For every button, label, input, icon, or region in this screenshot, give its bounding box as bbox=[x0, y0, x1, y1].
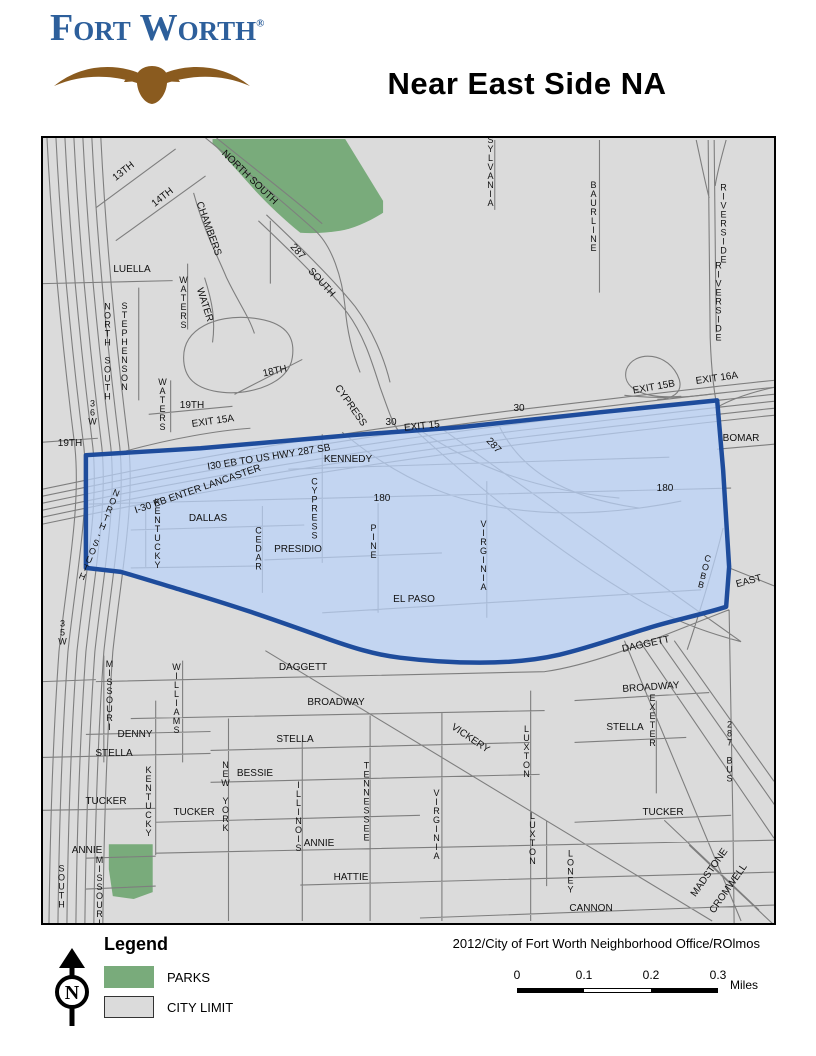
street-label: RIVERSIDE bbox=[719, 183, 728, 264]
street-label: STELLA bbox=[276, 735, 313, 745]
street-label: MISSOURI bbox=[105, 659, 114, 731]
street-label: SOUTH bbox=[57, 864, 66, 909]
street-label: 30 bbox=[513, 404, 524, 414]
scale-tick: 0.1 bbox=[576, 968, 593, 982]
street-label: KENNEDY bbox=[324, 455, 372, 465]
street-label: WILLIAMS bbox=[172, 662, 181, 734]
street-label: 287 BUS bbox=[725, 720, 734, 783]
street-label: TUCKER bbox=[85, 797, 126, 807]
street-label: SYLVANIA bbox=[486, 136, 495, 207]
scale-segment bbox=[584, 988, 651, 993]
longhorn-icon bbox=[52, 54, 252, 104]
street-label: LUXTON bbox=[528, 811, 537, 865]
street-label: WATERS bbox=[158, 377, 167, 431]
logo-text: Fort Worth bbox=[50, 7, 256, 49]
scale-tick: 0.3 bbox=[710, 968, 727, 982]
street-label: CYPRESS bbox=[310, 477, 319, 540]
street-label: STELLA bbox=[95, 749, 132, 759]
street-label: 35W bbox=[58, 619, 67, 646]
page-title: Near East Side NA bbox=[320, 66, 734, 102]
north-arrow: N bbox=[44, 946, 100, 1030]
logo-wordmark: Fort Worth® bbox=[50, 8, 290, 50]
street-label: NORTH SOUTH bbox=[103, 302, 112, 401]
street-label: TUCKER bbox=[173, 808, 214, 818]
street-label: RIVERSIDE bbox=[714, 261, 723, 342]
street-label: 180 bbox=[657, 484, 674, 494]
street-label: EL PASO bbox=[393, 595, 435, 605]
street-label: KENTUCKY bbox=[144, 765, 153, 837]
scale-tick: 0 bbox=[514, 968, 521, 982]
street-label: BOMAR bbox=[723, 434, 760, 444]
legend-heading: Legend bbox=[104, 934, 168, 955]
scale-segment bbox=[517, 988, 584, 993]
street-label: DENNY bbox=[117, 730, 152, 740]
scale-tick: 0.2 bbox=[643, 968, 660, 982]
street-label: EXETER bbox=[648, 693, 657, 747]
parks-swatch bbox=[104, 966, 154, 988]
city-limit-swatch bbox=[104, 996, 154, 1018]
map: 13TH14THCHAMBERSNORTH SOUTH287SOUTHSYLVA… bbox=[41, 136, 776, 925]
street-label: ILLINOIS bbox=[294, 780, 303, 852]
map-attribution: 2012/City of Fort Worth Neighborhood Off… bbox=[380, 936, 760, 951]
street-label: LUXTON bbox=[522, 724, 531, 778]
street-label: TUCKER bbox=[642, 808, 683, 818]
street-label: VIRGINIA bbox=[479, 519, 488, 591]
street-label: 36W bbox=[88, 399, 97, 426]
street-label: DAGGETT bbox=[279, 663, 327, 673]
street-label: STELLA bbox=[606, 723, 643, 733]
street-label: 30 bbox=[385, 418, 396, 428]
registered-mark: ® bbox=[256, 17, 264, 29]
street-label: PRESIDIO bbox=[274, 545, 322, 555]
street-label: NEW YORK bbox=[221, 760, 230, 832]
street-label: PINE bbox=[369, 523, 378, 559]
compass-letter: N bbox=[65, 982, 80, 1004]
street-label: DALLAS bbox=[189, 514, 227, 524]
street-label: HATTIE bbox=[334, 873, 369, 883]
street-label: STEPHENSON bbox=[120, 301, 129, 391]
street-label: ANNIE bbox=[304, 839, 335, 849]
street-label: VIRGINIA bbox=[432, 788, 441, 860]
street-label: TENNESSEE bbox=[362, 761, 371, 842]
legend-item-label: PARKS bbox=[167, 970, 210, 985]
street-label: LUELLA bbox=[113, 265, 150, 275]
scale-unit: Miles bbox=[730, 978, 758, 992]
scale-segment bbox=[651, 988, 718, 993]
street-label: LONEY bbox=[566, 849, 575, 894]
street-label: CEDAR bbox=[254, 526, 263, 571]
street-label: 180 bbox=[374, 494, 391, 504]
fort-worth-logo: Fort Worth® bbox=[50, 8, 290, 50]
street-label: BROADWAY bbox=[307, 698, 364, 708]
street-label: BAURLINE bbox=[589, 180, 598, 252]
street-label: WATERS bbox=[179, 275, 188, 329]
street-label: KENTUCKY bbox=[153, 497, 162, 569]
street-label: BESSIE bbox=[237, 769, 273, 779]
street-label: MISSOURI bbox=[95, 855, 104, 925]
scale-bar: 00.10.20.3 Miles bbox=[505, 968, 765, 1008]
street-label: 19TH bbox=[180, 401, 204, 411]
street-label: CANNON bbox=[569, 904, 612, 914]
street-label: 19TH bbox=[58, 439, 82, 449]
legend-item-label: CITY LIMIT bbox=[167, 1000, 233, 1015]
